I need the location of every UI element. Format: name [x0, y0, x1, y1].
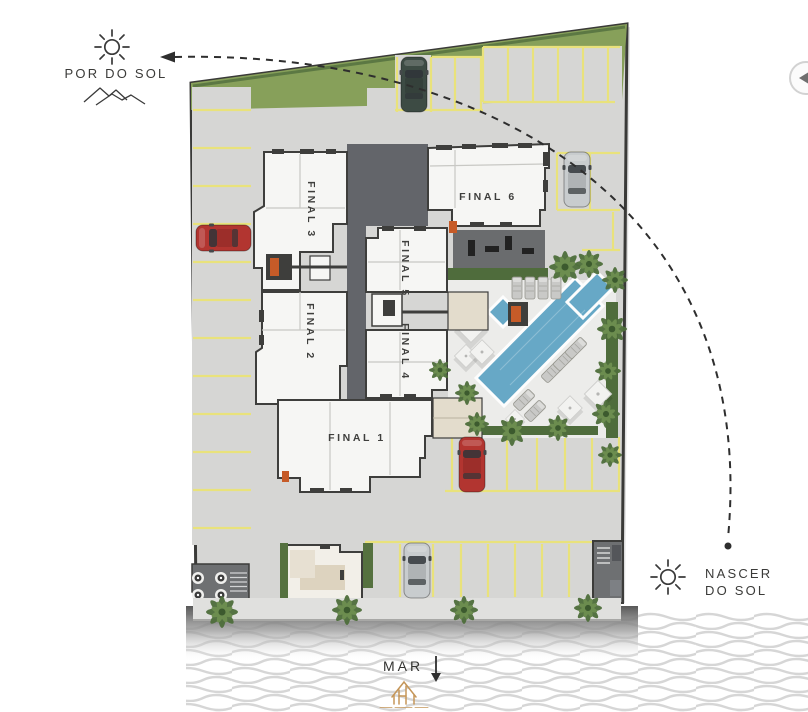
final-1-label: FINAL 1 — [328, 432, 386, 444]
site-plan-canvas: FINAL 3 FINAL 2 FINAL 5 FINAL 4 FINAL 6 … — [0, 0, 808, 712]
sunrise-compass: NASCER DO SOL — [651, 560, 772, 598]
car-icon — [563, 152, 592, 207]
gatehouse-hedge-left — [280, 543, 288, 600]
final-2-label: FINAL 2 — [304, 303, 316, 361]
entry-door-orange — [270, 258, 279, 276]
sea-label: MAR — [383, 658, 423, 674]
utility-structure — [593, 541, 623, 603]
car-icon — [403, 543, 432, 598]
site-plan: FINAL 3 FINAL 2 FINAL 5 FINAL 4 FINAL 6 … — [191, 24, 630, 628]
sunrise-label-line1: NASCER — [705, 566, 772, 581]
entry-door-orange — [511, 306, 521, 322]
carousel-prev-button[interactable] — [790, 62, 808, 94]
final-4-label: FINAL 4 — [399, 323, 411, 381]
gatehouse — [280, 543, 373, 604]
arc-end-dot — [725, 543, 732, 550]
entry-door-orange — [449, 221, 457, 233]
final-5-label: FINAL 5 — [399, 240, 411, 298]
sidewalk — [193, 598, 621, 620]
sun-icon — [651, 560, 685, 594]
final-6-label: FINAL 6 — [459, 191, 517, 203]
final-3-label: FINAL 3 — [305, 181, 317, 239]
gym-terrace — [453, 230, 545, 268]
entry-door-orange — [282, 471, 289, 482]
car-icon — [400, 57, 429, 112]
sunrise-label-line2: DO SOL — [705, 583, 767, 598]
west-arrowhead-icon — [160, 52, 175, 63]
car-icon — [196, 224, 251, 253]
gatehouse-hedge-right — [363, 543, 373, 588]
sunset-compass: POR DO SOL — [65, 30, 168, 105]
car-icon — [458, 437, 487, 492]
sunset-label: POR DO SOL — [65, 66, 168, 81]
mountains-icon — [84, 88, 145, 105]
sun-icon — [95, 30, 129, 64]
